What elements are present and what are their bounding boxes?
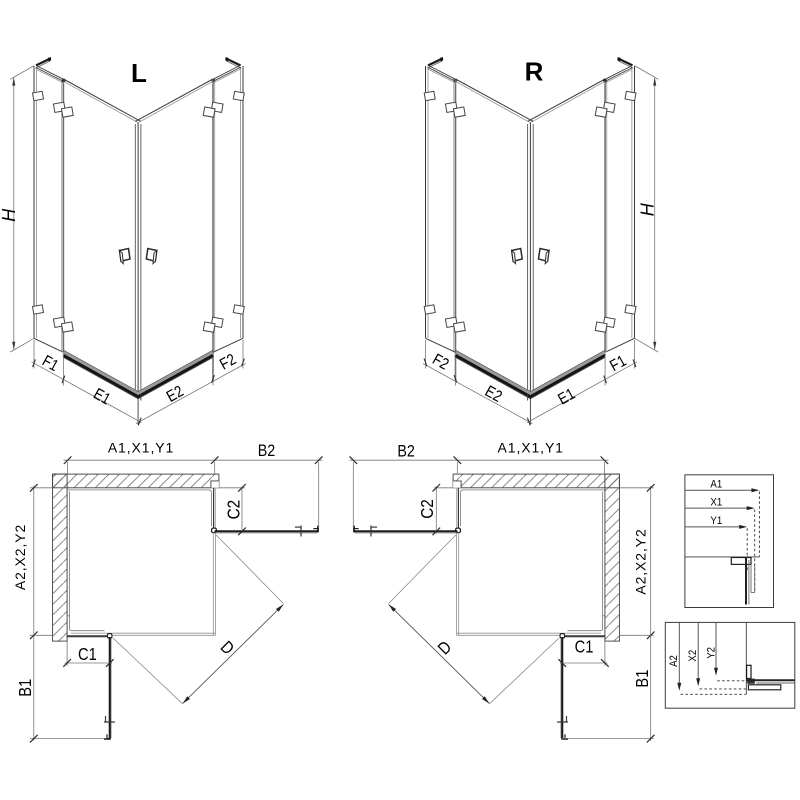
svg-text:R: R	[525, 57, 544, 87]
svg-text:B2: B2	[258, 442, 275, 460]
svg-text:X1: X1	[710, 497, 722, 509]
svg-text:A2,X2,Y2: A2,X2,Y2	[633, 528, 649, 594]
svg-text:A2,X2,Y2: A2,X2,Y2	[12, 524, 28, 590]
svg-text:B1: B1	[16, 679, 35, 697]
svg-text:B2: B2	[397, 443, 414, 461]
svg-text:A2: A2	[668, 655, 680, 667]
svg-text:A1: A1	[710, 479, 722, 491]
svg-text:Y1: Y1	[710, 516, 722, 528]
svg-text:C2: C2	[224, 500, 244, 520]
svg-text:A1,X1,Y1: A1,X1,Y1	[108, 440, 174, 456]
svg-text:C1: C1	[575, 638, 594, 657]
svg-text:C2: C2	[417, 499, 437, 519]
svg-text:A1,X1,Y1: A1,X1,Y1	[498, 440, 564, 456]
svg-text:H: H	[0, 208, 19, 222]
svg-text:X2: X2	[687, 650, 699, 662]
svg-text:L: L	[131, 58, 147, 88]
svg-text:Y2: Y2	[706, 647, 718, 659]
svg-text:H: H	[638, 202, 658, 216]
svg-text:C1: C1	[78, 645, 97, 664]
svg-text:B1: B1	[633, 670, 652, 688]
